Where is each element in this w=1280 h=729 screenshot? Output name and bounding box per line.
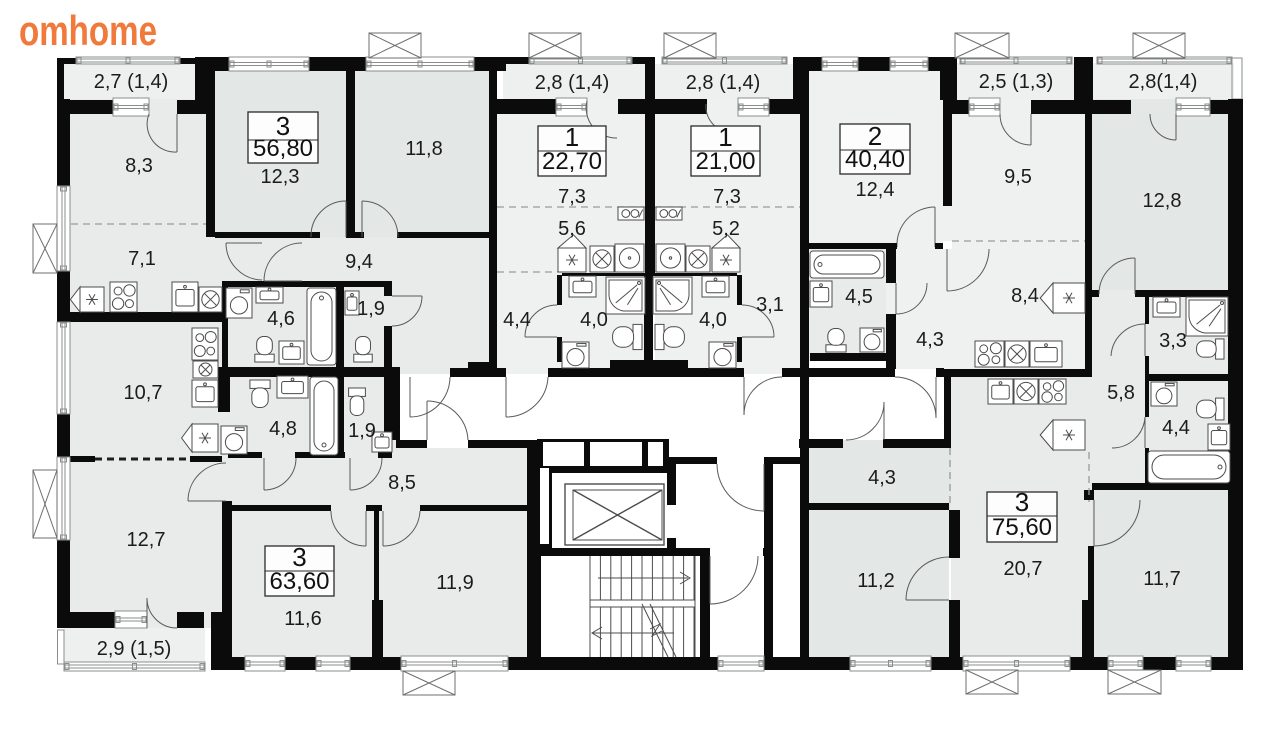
svg-text:56,80: 56,80 xyxy=(253,135,313,162)
svg-text:omhome: omhome xyxy=(19,7,157,54)
svg-text:8,3: 8,3 xyxy=(125,155,153,177)
svg-text:4,6: 4,6 xyxy=(267,308,295,330)
svg-text:12,7: 12,7 xyxy=(127,529,166,551)
svg-text:10,7: 10,7 xyxy=(124,382,163,404)
svg-text:2,8 (1,4): 2,8 (1,4) xyxy=(686,72,760,94)
svg-text:9,4: 9,4 xyxy=(345,251,373,273)
svg-text:8,5: 8,5 xyxy=(388,472,416,494)
svg-text:12,3: 12,3 xyxy=(261,166,300,188)
svg-text:5,2: 5,2 xyxy=(712,218,740,240)
svg-text:11,7: 11,7 xyxy=(1143,568,1180,590)
svg-text:5,6: 5,6 xyxy=(558,218,586,240)
svg-text:2,8 (1,4): 2,8 (1,4) xyxy=(535,72,609,94)
svg-text:11,9: 11,9 xyxy=(436,572,473,594)
svg-text:7,3: 7,3 xyxy=(558,186,586,208)
svg-text:3,3: 3,3 xyxy=(1159,330,1187,352)
svg-text:2,9 (1,5): 2,9 (1,5) xyxy=(97,638,171,660)
svg-text:4,3: 4,3 xyxy=(868,467,896,489)
svg-text:4,0: 4,0 xyxy=(699,309,727,331)
svg-text:11,6: 11,6 xyxy=(284,608,321,630)
svg-text:4,5: 4,5 xyxy=(845,286,873,308)
svg-text:22,70: 22,70 xyxy=(542,148,602,175)
svg-text:8,4: 8,4 xyxy=(1011,285,1039,307)
svg-text:1,9: 1,9 xyxy=(348,420,376,442)
svg-text:11,2: 11,2 xyxy=(857,570,894,592)
svg-text:3,1: 3,1 xyxy=(756,294,784,316)
svg-text:2,7 (1,4): 2,7 (1,4) xyxy=(94,71,168,93)
svg-text:11,8: 11,8 xyxy=(405,138,442,160)
svg-text:20,7: 20,7 xyxy=(1004,558,1043,580)
svg-text:4,8: 4,8 xyxy=(269,418,297,440)
svg-text:9,5: 9,5 xyxy=(1004,166,1032,188)
svg-text:1,9: 1,9 xyxy=(357,298,385,320)
svg-text:7,3: 7,3 xyxy=(713,186,741,208)
svg-text:12,8: 12,8 xyxy=(1143,190,1182,212)
svg-text:63,60: 63,60 xyxy=(269,568,329,595)
svg-text:2,5 (1,3): 2,5 (1,3) xyxy=(979,71,1053,93)
svg-text:3: 3 xyxy=(1015,487,1029,517)
svg-text:4,4: 4,4 xyxy=(503,309,531,331)
svg-text:7,1: 7,1 xyxy=(128,248,156,270)
svg-text:4,0: 4,0 xyxy=(580,309,608,331)
svg-text:21,00: 21,00 xyxy=(695,148,755,175)
svg-text:4,3: 4,3 xyxy=(916,329,944,351)
svg-text:12,4: 12,4 xyxy=(856,179,895,201)
svg-text:75,60: 75,60 xyxy=(992,514,1052,541)
svg-text:2,8(1,4): 2,8(1,4) xyxy=(1129,71,1198,93)
svg-text:4,4: 4,4 xyxy=(1162,417,1190,439)
svg-text:5,8: 5,8 xyxy=(1107,382,1135,404)
svg-text:40,40: 40,40 xyxy=(845,146,905,173)
